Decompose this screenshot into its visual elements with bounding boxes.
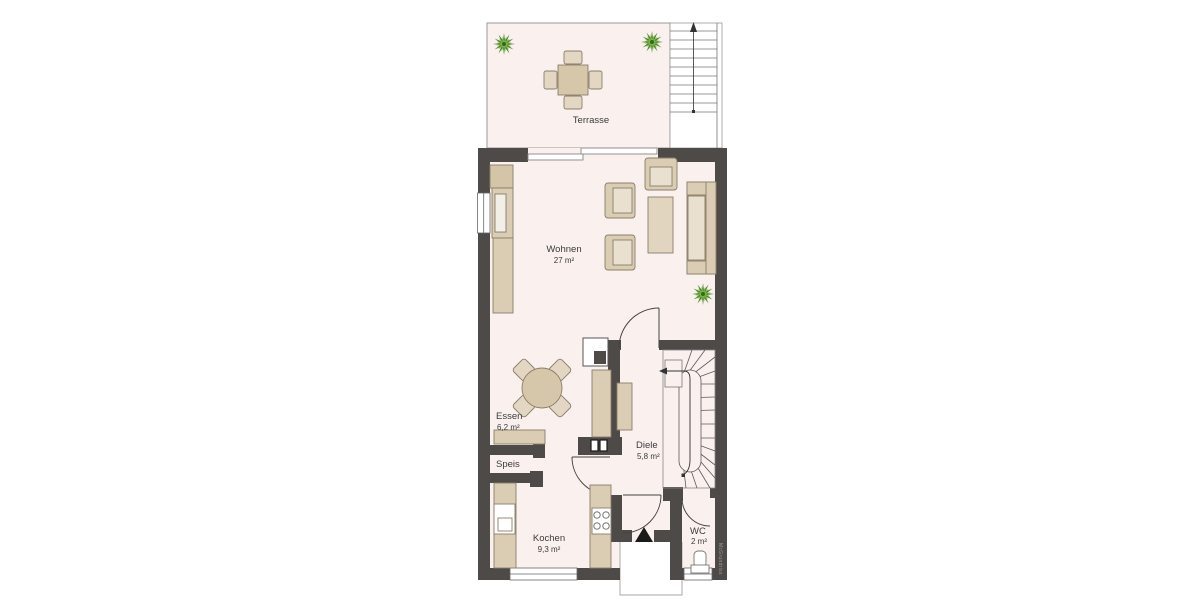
hall-cabinet xyxy=(617,383,632,430)
sideboard xyxy=(494,430,545,444)
room-label-speis: Speis xyxy=(496,460,520,470)
room-label-wc: WC xyxy=(690,527,706,537)
sofa xyxy=(687,182,716,274)
armchair xyxy=(645,158,677,190)
armchair xyxy=(605,235,635,270)
chimney xyxy=(583,338,608,366)
room-label-kochen: Kochen xyxy=(533,534,565,544)
exterior-stairs xyxy=(670,22,722,148)
watermark: McGrundriss xyxy=(717,543,723,575)
hall-cabinet xyxy=(592,370,611,437)
stove xyxy=(592,508,611,534)
room-label-wohnen: Wohnen xyxy=(546,245,581,255)
wall-unit xyxy=(490,165,513,313)
floorplan-canvas: Terrasse Wohnen 27 m² Essen 6,2 m² Speis… xyxy=(0,0,1200,600)
room-area-diele: 5,8 m² xyxy=(637,453,660,461)
room-label-essen: Essen xyxy=(496,412,522,422)
room-area-wohnen: 27 m² xyxy=(554,257,574,265)
room-label-diele: Diele xyxy=(636,441,658,451)
kitchen-counter-left xyxy=(494,483,516,568)
room-area-kochen: 9,3 m² xyxy=(538,546,561,554)
armchair xyxy=(605,183,635,218)
toilet xyxy=(691,551,709,573)
room-label-terrasse: Terrasse xyxy=(573,116,609,126)
floor-plan: Terrasse Wohnen 27 m² Essen 6,2 m² Speis… xyxy=(460,10,740,600)
room-area-wc: 2 m² xyxy=(691,538,707,546)
plan-graphics xyxy=(460,10,740,600)
coffee-table xyxy=(648,197,673,253)
kitchen-counter-right xyxy=(590,485,611,568)
room-area-essen: 6,2 m² xyxy=(497,424,520,432)
